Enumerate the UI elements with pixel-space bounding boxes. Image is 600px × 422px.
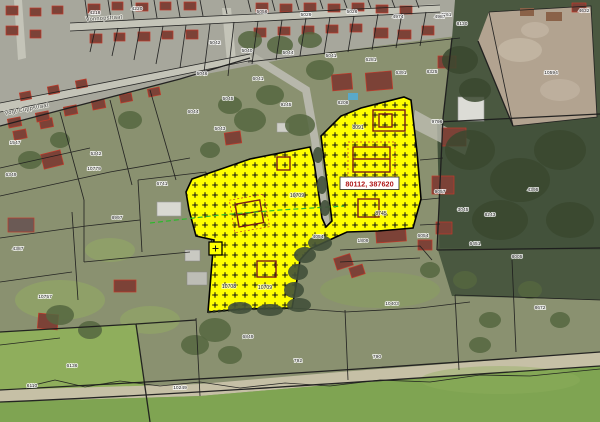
parcel-number-label: 5041 [326,53,337,59]
selected-parcel-number-label: 8745 [375,211,386,217]
selected-parcel-number-label: 10708 [222,284,236,290]
map-canvas[interactable]: 4218422050565029502649744961504250405044… [0,0,600,422]
parcel-number-label: 10779 [87,166,101,172]
parcel-number-label: 9796 [432,119,443,125]
parcel-number-label: 8130 [457,21,468,27]
parcel-number-label: 8005 [512,254,523,260]
parcel-number-label: 4387 [13,246,24,252]
parcel-number-label: 10249 [173,385,187,391]
parcel-number-label: 4974 [393,14,404,20]
parcel-number-label: 6391 [396,70,407,76]
parcel-number-label: 9057 [435,189,446,195]
parcel-number-label: 6110 [27,383,38,389]
parcel-number-label: 6044 [188,109,199,115]
parcel-number-label: 5046 [197,71,208,77]
selected-parcel-number-label: 8091 [352,125,363,131]
parcel-number-label: 8672 [535,305,546,311]
parcel-number-label: 5056 [257,9,268,15]
parcel-number-label: 5044 [283,50,294,56]
parcel-number-label: 6849 [243,334,254,340]
parcel-number-label: 8997 [112,215,123,221]
parcel-number-label: 4632 [579,8,590,14]
parcel-number-label: 4054 [313,234,324,240]
parcel-number-label: 6136 [67,363,78,369]
parcel-number-label: 5029 [301,12,312,18]
parcel-number-label: 4395 [528,187,539,193]
parcel-number-label: 5040 [242,48,253,54]
parcel-number-label: 5342 [91,151,102,157]
parcel-number-label: 6349 [6,172,17,178]
parcel-number-label: 5045 [223,96,234,102]
coordinate-readout: 80112, 387620 [340,177,399,190]
parcel-number-label: 1809 [358,238,369,244]
parcel-number-label: 4220 [132,6,143,12]
parcel-number-label: 792 [294,358,302,364]
parcel-number-label: 790 [373,354,381,360]
coordinate-label: 80112, 387620 [345,179,393,188]
parcel-number-label: 8208 [338,100,349,106]
parcel-number-label: 9245 [281,102,292,108]
parcel-number-label: 6281 [366,57,377,63]
parcel-number-label: 6451 [470,241,481,247]
parcel-number-label: 8325 [427,69,438,75]
parcel-number-label: 6041 [253,76,264,82]
parcel-number-label: 5043 [215,126,226,132]
parcel-number-label: 6054 [418,233,429,239]
parcel-number-label: 1547 [10,140,21,146]
parcel-number-label: 5026 [347,9,358,15]
parcel-number-label: 5042 [210,40,221,46]
parcel-number-label: 10594 [544,70,558,76]
parcel-number-label: 3045 [458,207,469,213]
parcel-number-label: 6741 [157,181,168,187]
parcel-number-label: 10757 [38,294,52,300]
selected-parcel-number-label: 10709 [258,285,272,291]
parcel-number-label: 4987 [435,14,446,20]
selected-parcel-number-label: 10709 [290,193,304,199]
parcel-number-label: 10403 [385,301,399,307]
parcel-number-label: 8243 [485,212,496,218]
